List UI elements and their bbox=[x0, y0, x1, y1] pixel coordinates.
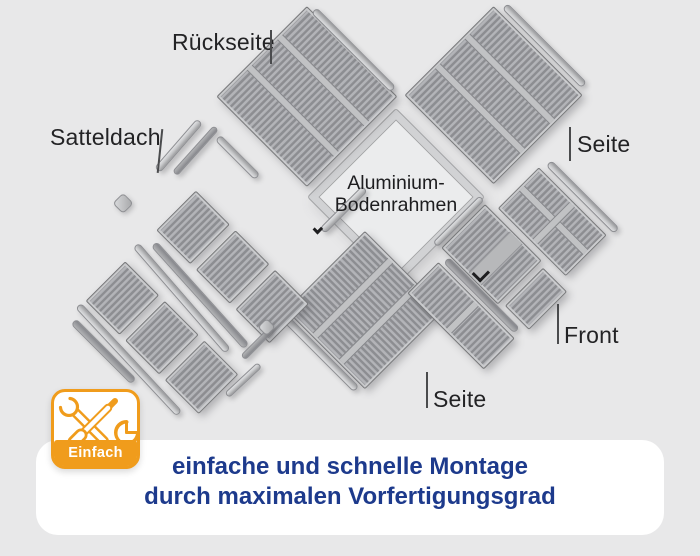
corner-cap bbox=[112, 193, 133, 214]
label-floor-frame-line1: Aluminium- bbox=[296, 172, 496, 194]
caption-line2: durch maximalen Vorfertigungsgrad bbox=[36, 482, 664, 512]
label-side-right-tick bbox=[569, 127, 571, 161]
label-back: Rückseite bbox=[172, 29, 275, 56]
panel-ridge bbox=[446, 301, 479, 334]
label-roof: Satteldach bbox=[50, 124, 161, 151]
badge-label: Einfach bbox=[54, 440, 137, 466]
label-side-bottom: Seite bbox=[433, 386, 486, 413]
product-illustration: Rückseite Satteldach Aluminium- Bodenrah… bbox=[0, 0, 700, 525]
easy-assembly-badge: Einfach bbox=[51, 389, 140, 469]
label-side-right: Seite bbox=[577, 131, 630, 158]
profile-rail bbox=[215, 135, 260, 180]
label-side-bottom-tick bbox=[426, 372, 428, 408]
label-front: Front bbox=[564, 322, 619, 349]
label-floor-frame: Aluminium- Bodenrahmen bbox=[296, 172, 496, 216]
label-back-tick bbox=[270, 30, 272, 64]
label-front-tick bbox=[557, 304, 559, 344]
label-floor-frame-line2: Bodenrahmen bbox=[296, 194, 496, 216]
